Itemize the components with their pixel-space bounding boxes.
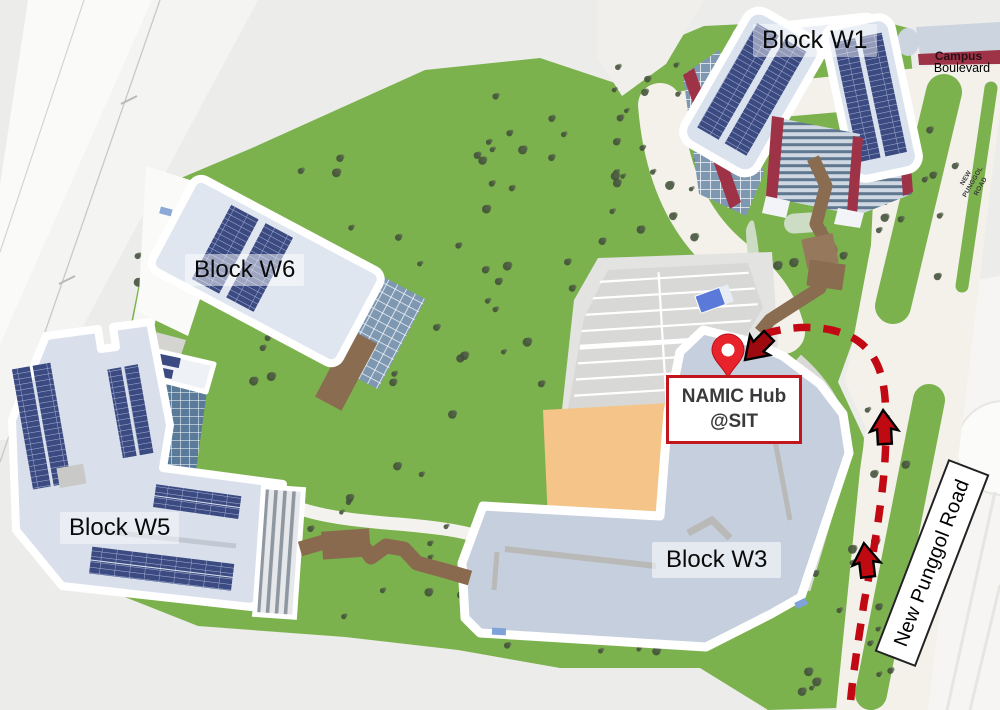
w5-annex-building bbox=[255, 487, 304, 617]
namic-hub-callout: NAMIC Hub @SIT bbox=[666, 375, 802, 444]
label-block-w1: Block W1 bbox=[753, 24, 877, 57]
namic-hub-line1: NAMIC Hub bbox=[671, 385, 797, 410]
namic-hub-line2: @SIT bbox=[671, 410, 797, 435]
road-label-boulevard: Boulevard bbox=[922, 61, 1000, 75]
label-block-w3: Block W3 bbox=[652, 542, 781, 578]
map-canvas bbox=[0, 0, 1000, 710]
campus-map: Block W1 Block W6 Block W5 Block W3 NAMI… bbox=[0, 0, 1000, 710]
label-block-w5: Block W5 bbox=[60, 512, 179, 544]
label-block-w6: Block W6 bbox=[185, 254, 304, 286]
